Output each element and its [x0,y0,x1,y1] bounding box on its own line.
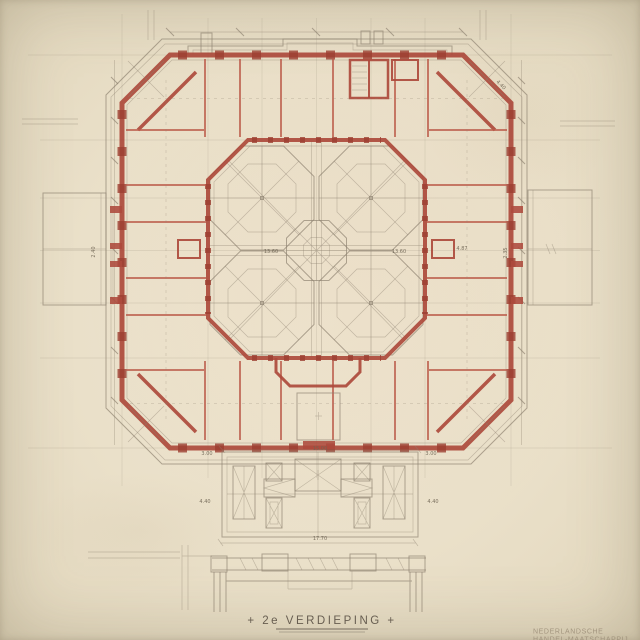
chimney [361,31,370,44]
dim-label: 17.70 [313,536,327,542]
drawing-title: + 2e VERDIEPING + [247,615,396,627]
portico-skylight-right [383,466,405,519]
title-block: + 2e VERDIEPING + [247,615,396,632]
terrace [88,539,426,612]
chimney [374,31,383,44]
dim-label: 4.40 [427,499,438,505]
right-wing-roof [528,190,592,305]
dim-label: 13.60 [264,249,278,255]
stamp-line-1: NEDERLANDSCHE [533,629,603,636]
floor-plan-drawing: 15.00 17.70 13.60 13.60 4.87 2.35 4.40 2… [0,0,640,640]
stair-block [350,60,418,98]
lift-shaft [432,240,454,258]
skylight-octagon-sw [210,251,314,355]
archive-stamp: NEDERLANDSCHE HANDEL-MAATSCHAPPIJ [533,629,628,640]
south-court-bay [276,358,360,386]
dim-label: 15.00 [313,446,327,452]
portico-skylight-left [233,466,255,519]
stamp-line-2: HANDEL-MAATSCHAPPIJ [533,637,628,640]
dim-label: 13.60 [392,249,406,255]
dim-label: 4.40 [199,499,210,505]
dimension-labels: 15.00 17.70 13.60 13.60 4.87 2.35 4.40 2… [91,79,509,542]
dim-label: 2.35 [503,247,509,258]
dim-label: 2.40 [91,246,97,257]
dim-label: 4.87 [456,246,467,252]
dim-label: 3.00 [201,451,212,457]
dim-label: 3.00 [425,451,436,457]
lift-shaft [178,240,200,258]
skylight-octagon-se [319,251,423,355]
drawing-sheet: 15.00 17.70 13.60 13.60 4.87 2.35 4.40 2… [0,0,640,640]
